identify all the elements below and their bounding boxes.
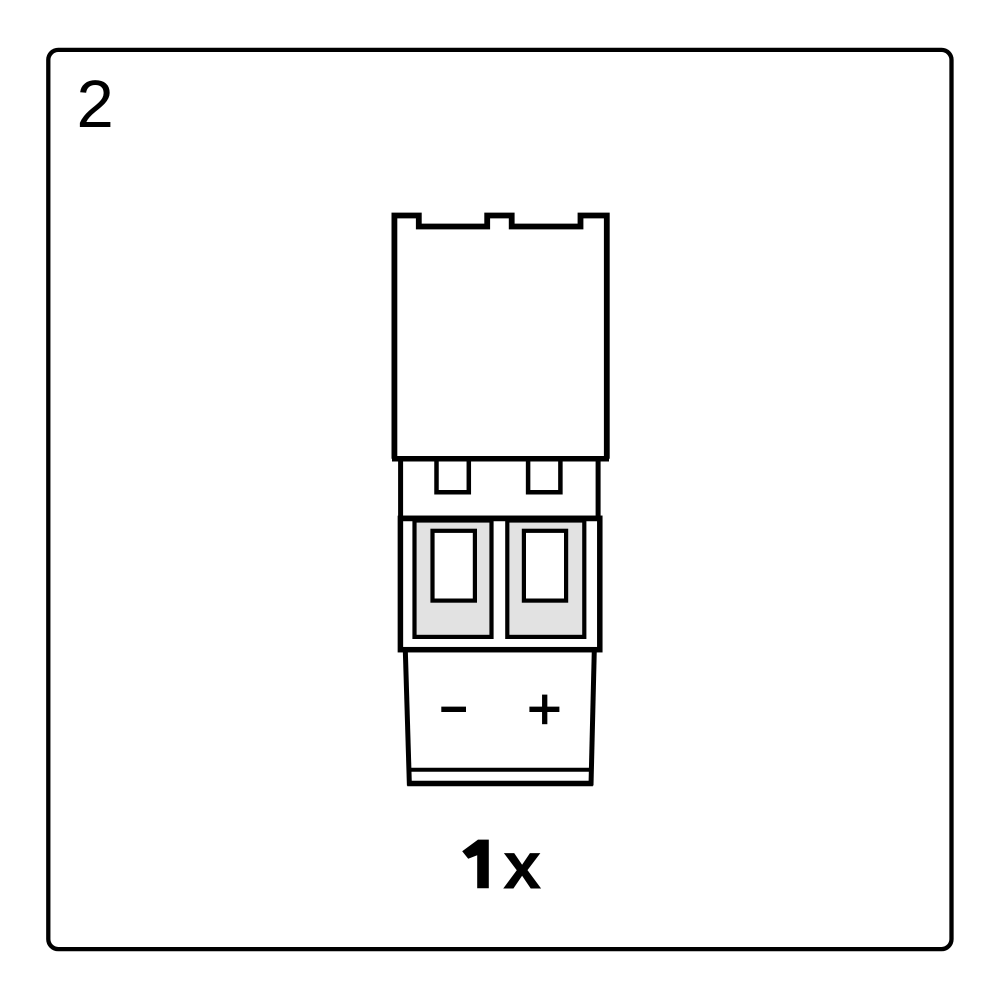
svg-text:2: 2 xyxy=(77,67,114,142)
svg-text:x: x xyxy=(503,829,542,903)
